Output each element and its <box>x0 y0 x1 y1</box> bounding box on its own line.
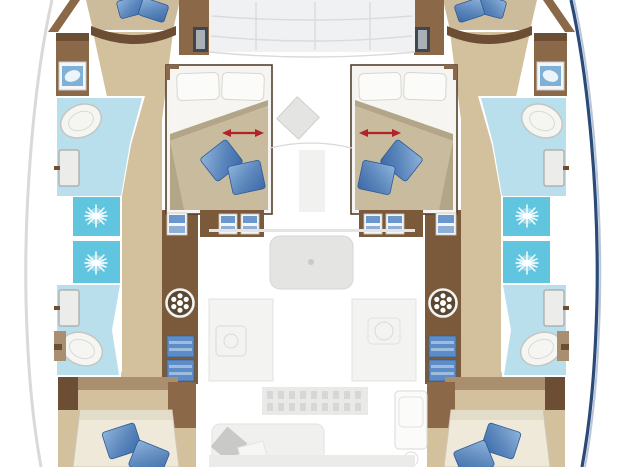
floorplan-canvas <box>0 0 623 467</box>
bow-angled-wall <box>48 0 80 32</box>
bed-pillow-white <box>222 72 265 100</box>
ghost-galley-counter-right <box>352 299 416 381</box>
ghost-cushion <box>277 97 319 139</box>
ghost-companionway <box>299 150 325 212</box>
ghost-deck-line <box>270 143 352 148</box>
aft-bed-bolster <box>80 410 172 420</box>
forward-head-door <box>59 150 79 186</box>
aft-cabin-headboard <box>58 377 78 410</box>
step-unit <box>167 213 187 235</box>
bed-pillow-white <box>177 72 220 100</box>
ghost-table-dot <box>308 259 314 265</box>
ghost-stove-grid <box>262 387 368 415</box>
door-handle <box>54 166 60 170</box>
ghost-fridge <box>395 391 427 466</box>
port-hull-outline <box>26 0 52 467</box>
ghost-transom-step <box>209 455 415 467</box>
bed-pillow-blue <box>227 160 265 195</box>
port-hull <box>48 0 272 467</box>
outboard-jamb-notch <box>54 344 62 350</box>
wardrobe-shelf <box>56 33 89 41</box>
aft-head-door <box>59 290 79 326</box>
floorplan-svg <box>0 0 623 467</box>
coachroof-skylight <box>209 0 415 52</box>
ghost-divider <box>209 229 415 232</box>
door-handle <box>54 306 60 310</box>
starboard-hull <box>351 0 575 467</box>
ghost-galley-counter-left <box>209 299 273 381</box>
aft-cabin-shelf <box>78 377 178 390</box>
porthole-window-glass <box>196 30 205 49</box>
starboard-hull-outline <box>571 0 597 467</box>
